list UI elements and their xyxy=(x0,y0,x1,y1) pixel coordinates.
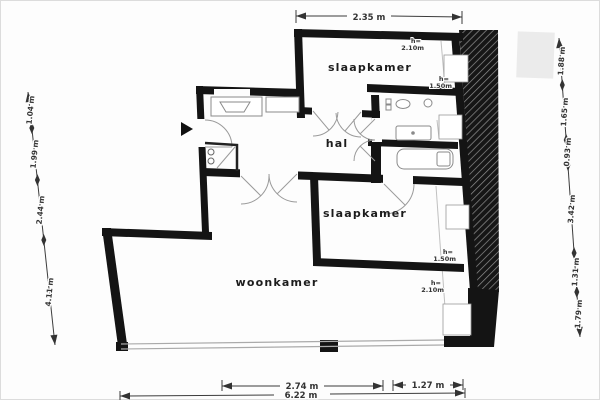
floorplan-page: slaapkamer hal slaapkamer woonkamer h= 2… xyxy=(0,0,600,400)
door-opening xyxy=(372,118,382,142)
watermark-box xyxy=(516,31,555,78)
room-label-living-room: woonkamer xyxy=(236,276,319,289)
room-label-right-bedroom: slaapkamer xyxy=(323,207,407,220)
cistern xyxy=(386,105,391,110)
faucet-icon xyxy=(411,131,415,135)
height-label: 1.50m xyxy=(433,255,456,263)
drain-icon xyxy=(424,99,432,107)
toilet-icon xyxy=(396,100,410,109)
window xyxy=(446,205,469,229)
dim-bottom-total: 6.22 m xyxy=(285,391,318,400)
door-opening xyxy=(383,173,413,185)
floorplan-drawing: slaapkamer hal slaapkamer woonkamer h= 2… xyxy=(0,0,600,400)
entrance-opening xyxy=(194,119,206,147)
height-label: 1.50m xyxy=(429,82,452,90)
cistern xyxy=(386,99,391,104)
dim-bottom-2: 1.27 m xyxy=(412,381,445,391)
room-label-hall: hal xyxy=(326,137,349,150)
height-label: 2.10m xyxy=(421,286,444,294)
counter xyxy=(266,97,299,112)
window xyxy=(443,304,471,335)
wall-segment xyxy=(371,95,380,122)
window xyxy=(439,115,462,139)
height-label: 2.10m xyxy=(401,44,424,52)
dim-top-label: 2.35 m xyxy=(353,13,386,23)
room-label-top-bedroom: slaapkamer xyxy=(328,61,412,74)
bathtub-end xyxy=(437,152,450,166)
